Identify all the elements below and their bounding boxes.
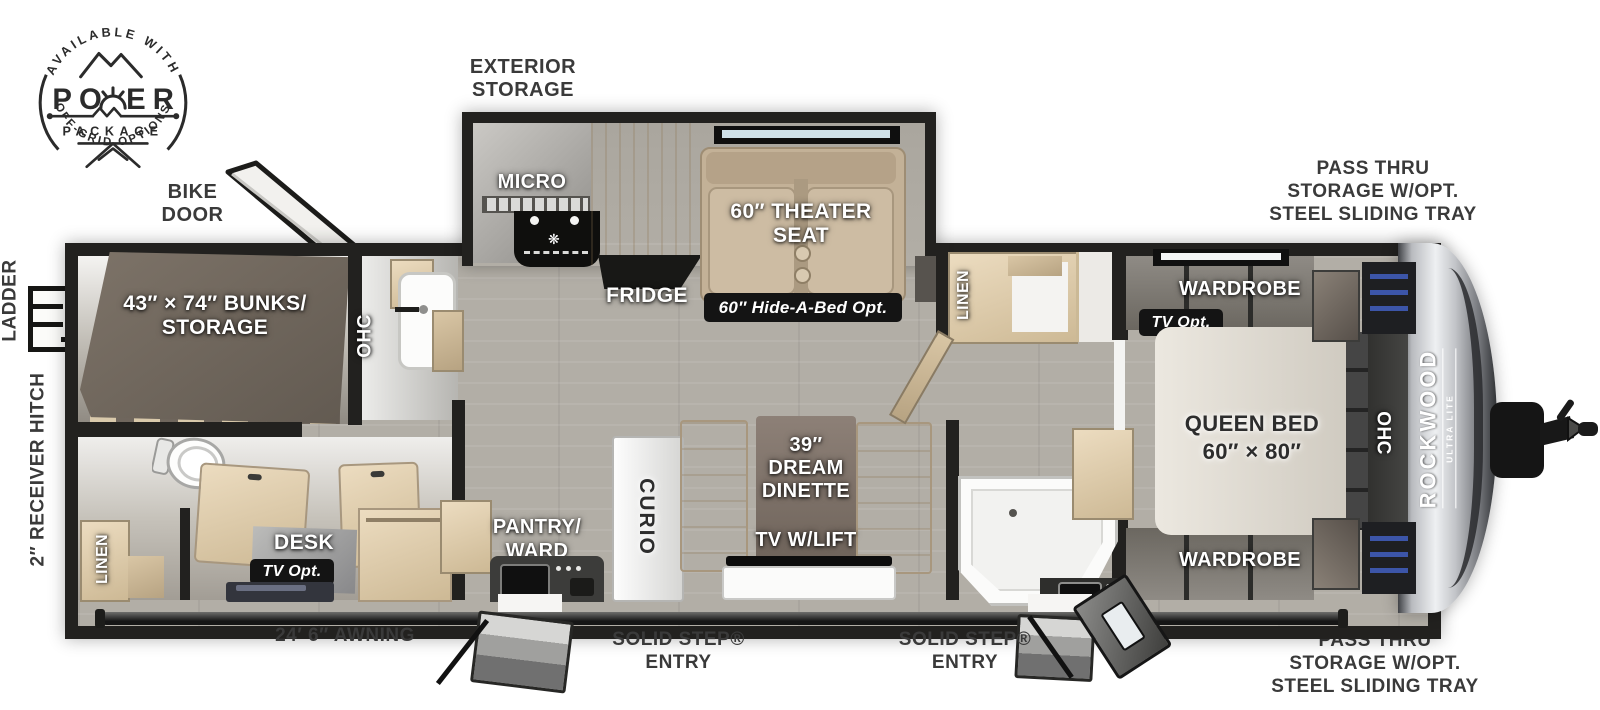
brand-name: ROCKWOOD [1416,348,1442,508]
bunks-label: 43″ × 74″ BUNKS/ STORAGE [95,292,335,340]
wardrobe-top-label: WARDROBE [1150,277,1330,301]
tv-lift-cabinet [722,566,896,600]
entry-1-label: SOLID STEP® ENTRY [596,628,761,674]
micro-label: MICRO [478,170,586,194]
pass-thru-rear-label: PASS THRU STORAGE W/OPT. STEEL SLIDING T… [1245,629,1505,698]
nightstand-top [1312,270,1360,342]
wardrobe-bottom-label: WARDROBE [1150,548,1330,572]
vanity-drawers [432,310,464,372]
logo-word-left: PO [52,83,109,116]
curio-label: CURIO [612,440,680,594]
mid-bath-counter [1076,252,1115,342]
awning-cap-right [1338,609,1348,628]
hitch-coupler-icon [1540,398,1600,482]
entry-2-label: SOLID STEP® ENTRY [885,628,1045,674]
queen-bed-label: QUEEN BED 60″ × 80″ [1162,410,1342,466]
laptop-icon [226,582,334,602]
stove-icon: ❋ [514,211,600,267]
bed-ohc-label: OHC [1368,400,1398,466]
awning-cap-left [95,609,105,628]
logo-arc-top: AVAILABLE WITH [43,25,182,77]
pass-thru-front-label: PASS THRU STORAGE W/OPT. STEEL SLIDING T… [1248,157,1498,226]
tongue-jack-icon [1490,402,1544,478]
file-cabinet [358,508,452,602]
fridge-label: FRIDGE [590,284,704,308]
wardrobe-cabinet-top-right [1362,262,1416,334]
logo-word-right: ER [126,83,181,116]
kitchen-cabinet [591,123,701,265]
entry-door-opening-1 [498,594,562,612]
logo-package-text: PACKAGE [62,124,163,138]
svg-text:AVAILABLE WITH: AVAILABLE WITH [43,25,182,77]
bedroom-window-icon [1153,249,1289,266]
desk-label: DESK [258,531,350,555]
wall-shower-left [946,420,959,600]
dinette-label: 39″ DREAM DINETTE [752,434,860,503]
slideout-window [714,126,900,144]
receiver-hitch-label: 2″ RECEIVER HITCH [20,358,56,580]
tv-lift-label: TV W/LIFT [740,528,872,552]
kitchen-sink-icon [500,564,550,598]
awning-label: 24′ 6″ AWNING [250,624,440,647]
logo-mountains-icon [81,54,142,77]
tv-lift-tv-icon [726,556,892,566]
wall-bath-desk [180,508,190,600]
ladder-label: LADDER [0,246,26,354]
rv-floorplan-diagram: AVAILABLE WITH OFF-GRID OPTIONS PO ER PA… [0,0,1600,710]
linen-step-shelf [128,556,164,598]
rear-linen-label: LINEN [82,524,124,594]
hide-a-bed-badge: 60″ Hide-A-Bed Opt. [704,293,902,322]
bed-headboard [1346,332,1368,530]
theater-seat-label: 60″ THEATER SEAT [700,200,902,248]
nightstand-bottom [1312,518,1360,590]
power-package-logo: AVAILABLE WITH OFF-GRID OPTIONS PO ER PA… [22,8,204,190]
bath-cabinet [1072,428,1134,520]
bedroom-door-slab [1114,340,1125,430]
mid-linen-label: LINEN [950,254,978,336]
vanity-ohc-label: OHC [352,296,380,376]
exterior-storage-label: EXTERIOR STORAGE [448,56,598,102]
wardrobe-cabinet-bottom-right [1362,522,1416,594]
brand-sub: ULTRA LITE [1443,348,1457,508]
dinette-bench-left [680,420,748,572]
front-cap-brand: ROCKWOOD ULTRA LITE [1414,310,1458,546]
